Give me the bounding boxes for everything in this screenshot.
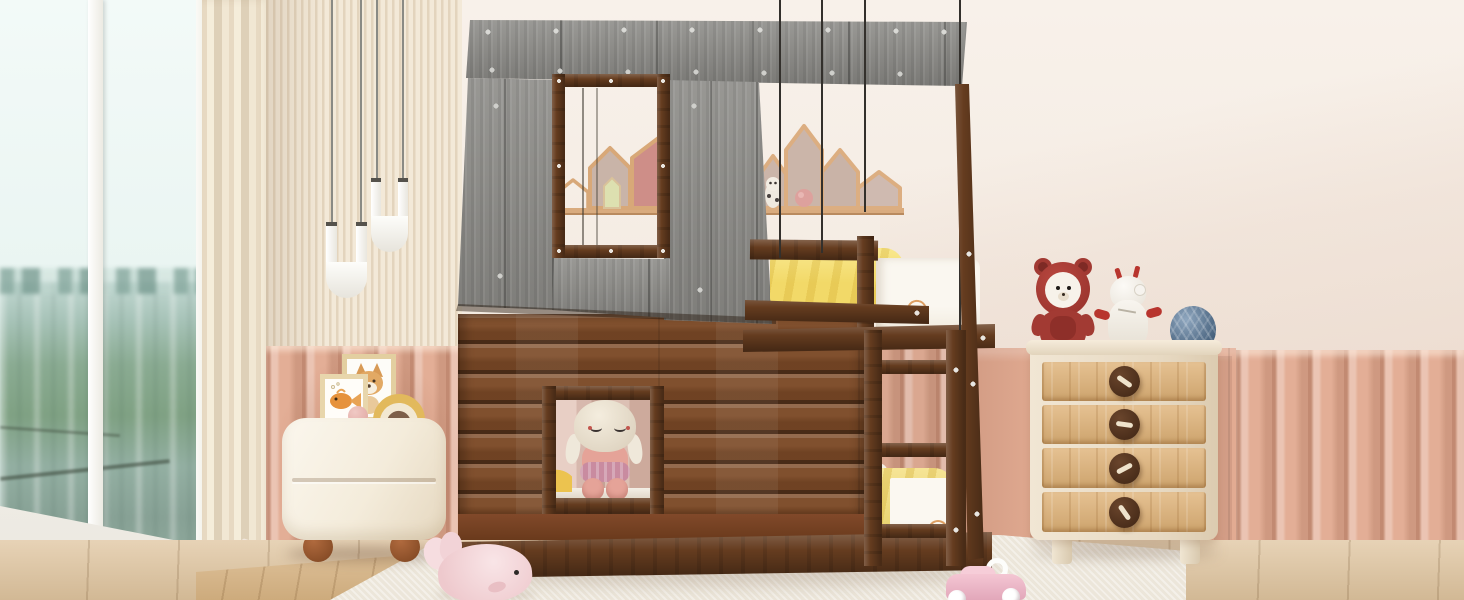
hanging-string <box>864 0 866 212</box>
lamp-cord <box>360 0 362 224</box>
cabin-window-frame <box>542 386 664 400</box>
roof-window-frame <box>552 74 670 258</box>
pendant-lamp-u <box>371 178 408 252</box>
nightstand-body <box>282 418 446 540</box>
doll-leg <box>606 478 628 500</box>
doll-blush <box>588 426 592 430</box>
window <box>0 0 214 600</box>
window-frame-bar <box>88 0 103 540</box>
cabin-window-frame <box>650 386 664 514</box>
roof-band <box>464 18 970 88</box>
nightstand-drawer-seam-highlight <box>292 482 436 484</box>
lamp-cord <box>402 0 404 180</box>
ladder-rail <box>946 330 966 566</box>
doll-eye <box>614 424 626 432</box>
frame-rivets <box>552 74 670 258</box>
room-photo <box>0 0 1464 600</box>
pendant-lamp-u <box>326 222 367 298</box>
hanging-string <box>821 0 823 253</box>
dresser-top <box>1026 340 1222 355</box>
roof-panel-below-window <box>552 254 670 318</box>
roof-panel-left <box>456 76 556 310</box>
roof-panel-right <box>664 78 774 324</box>
dresser-knob <box>1109 453 1140 484</box>
house-shelf-right-group <box>752 116 906 216</box>
cabin-window-frame <box>542 386 556 514</box>
dresser-knob <box>1109 366 1140 397</box>
lamp-cord <box>331 0 333 224</box>
toy-car <box>944 556 1030 600</box>
yellow-toy-corner <box>556 462 572 492</box>
lamp-cord <box>376 0 378 180</box>
ladder-rail <box>864 330 882 566</box>
doll-blush <box>626 426 630 430</box>
dresser-knob <box>1109 497 1140 528</box>
wainscot-right-fluted <box>1236 350 1464 554</box>
window-skyline <box>0 268 214 294</box>
cabin-window <box>542 386 664 514</box>
doll-leg <box>582 478 604 500</box>
whale-plush <box>418 530 536 600</box>
curtain <box>202 0 272 576</box>
cabin-window-frame <box>542 498 664 514</box>
bear-plush <box>1034 254 1096 354</box>
slat-wall-shadow <box>266 0 326 352</box>
dresser-knob <box>1109 409 1140 440</box>
hanging-string <box>779 0 781 258</box>
